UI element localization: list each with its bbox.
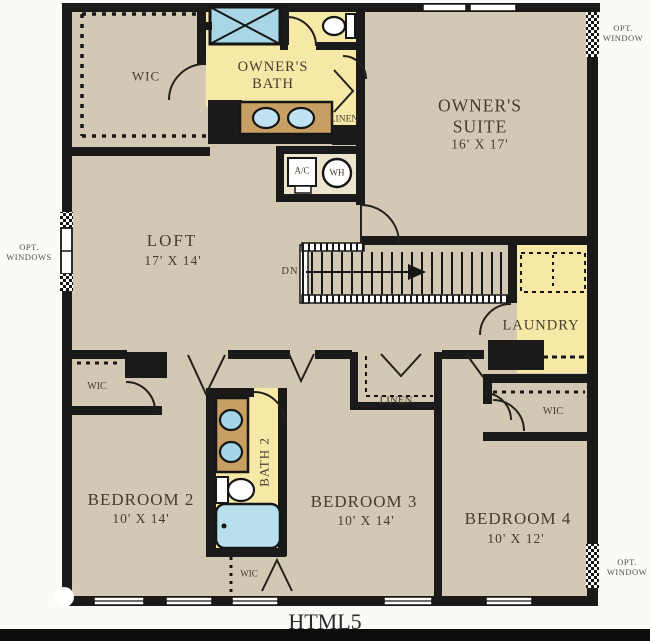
room-label-owners-suite: OWNER'S SUITE 16' X 17' [438, 95, 522, 152]
wall-segment [206, 548, 286, 557]
wall-segment [350, 352, 358, 410]
wall-segment [62, 350, 127, 359]
wall-segment [483, 374, 590, 383]
room-label-owners-suite-line1: OWNER'S [438, 95, 522, 116]
stair-rail [302, 295, 508, 303]
wall-segment [483, 374, 492, 404]
annotation-line: OPT. [603, 23, 643, 33]
window [423, 4, 466, 11]
watermark-blob [54, 587, 74, 607]
wall-segment [442, 350, 484, 359]
shower-valve-icon [205, 22, 212, 30]
room-label-wic-owner: WIC [132, 68, 160, 83]
room-label-owners-bath: OWNER'S BATH [238, 59, 309, 93]
bathtub-drain-icon [222, 524, 227, 529]
room-label-laundry: LAUNDRY [502, 317, 579, 334]
toilet-tank-icon [346, 14, 355, 38]
wall-segment [276, 146, 284, 202]
room-label-owners-suite-line2: SUITE [438, 116, 522, 137]
sink-icon [288, 108, 314, 128]
stair-rail [302, 243, 364, 251]
room-dims-bedroom3: 10' X 14' [337, 513, 394, 529]
wall-segment [356, 3, 365, 205]
room-label-bedroom3: BEDROOM 3 [311, 492, 418, 512]
room-dims-loft: 17' X 14' [144, 253, 201, 269]
wall-segment [276, 146, 365, 154]
window [470, 4, 516, 11]
sink-icon [253, 108, 279, 128]
room-dims-owners-suite: 16' X 17' [438, 137, 522, 153]
opt-windows-left-icon [60, 212, 73, 228]
room-label-linen-owner: LINEN [330, 114, 359, 125]
wall-segment [125, 352, 167, 378]
wall-segment [434, 352, 442, 596]
wall-segment [488, 340, 544, 370]
annotation-line: WINDOW [607, 567, 647, 577]
sink-icon [220, 410, 242, 430]
wall-segment [62, 406, 162, 415]
room-label-owners-bath-line2: BATH [238, 76, 309, 93]
room-dims-bedroom2: 10' X 14' [112, 511, 169, 527]
annotation-stairs-dn: DN [281, 266, 298, 278]
room-label-linen-hall: LINEN [380, 395, 413, 408]
annotation-opt-windows-left: OPT. WINDOWS [6, 242, 52, 262]
room-label-wic-bedroom4: WIC [543, 406, 563, 418]
annotation-opt-window-bottom: OPT. WINDOW [607, 557, 647, 577]
room-label-bedroom2: BEDROOM 2 [88, 490, 195, 510]
room-label-bath2: BATH 2 [256, 437, 271, 487]
wall-segment [508, 245, 517, 303]
fixture-label-wh: WH [330, 168, 345, 179]
sink-icon [220, 442, 242, 462]
wall-segment [206, 388, 216, 556]
room-label-loft: LOFT [147, 231, 198, 251]
wall-segment [197, 3, 206, 65]
room-label-wic-bedroom2: WIC [87, 381, 106, 393]
toilet-tank-icon [216, 477, 228, 503]
wall-outer-top [62, 3, 600, 12]
annotation-opt-window-top: OPT. WINDOW [603, 23, 643, 43]
floor-plan-page: WIC OWNER'S BATH LINEN OWNER'S SUITE 16'… [0, 0, 650, 641]
room-dims-bedroom4: 10' X 12' [487, 531, 544, 547]
wall-outer-right [587, 3, 598, 606]
annotation-line: OPT. [607, 557, 647, 567]
toilet-icon [228, 479, 254, 501]
wall-segment [332, 125, 358, 145]
wall-segment [62, 147, 210, 156]
wall-segment [228, 350, 290, 359]
ac-unit-icon [295, 186, 311, 193]
toilet-icon [323, 17, 345, 35]
annotation-line: OPT. [6, 242, 52, 252]
room-label-owners-bath-line1: OWNER'S [238, 59, 309, 76]
wall-outer-left [62, 3, 72, 606]
wall-segment [483, 432, 590, 441]
room-label-bedroom4: BEDROOM 4 [465, 509, 572, 529]
opt-window-bottom-icon [586, 544, 599, 588]
wall-segment [276, 194, 365, 202]
annotation-line: WINDOWS [6, 252, 52, 262]
footer-bar [0, 629, 650, 641]
fixture-label-ac: A/C [294, 166, 309, 177]
opt-window-top-icon [586, 12, 599, 57]
wall-segment [362, 236, 590, 245]
wall-segment [315, 350, 352, 359]
room-label-wic-hall: WIC [240, 569, 258, 580]
annotation-line: WINDOW [603, 33, 643, 43]
opt-windows-left-icon [60, 274, 73, 291]
